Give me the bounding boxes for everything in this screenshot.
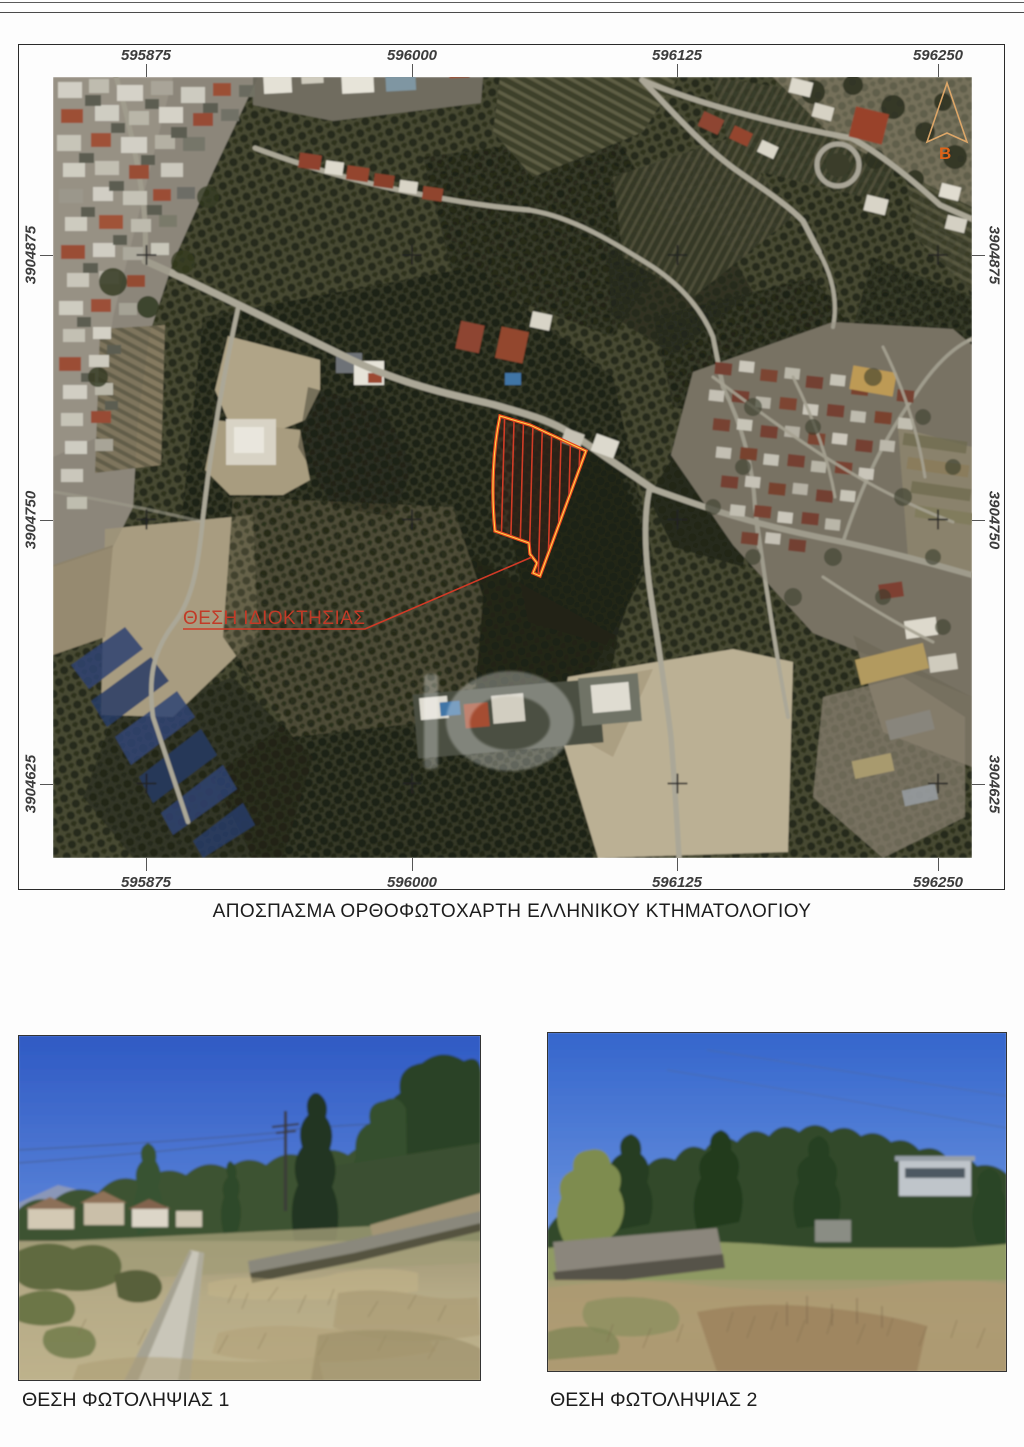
svg-text:ΘΕΣΗ ΙΔΙΟΚΤΗΣΙΑΣ: ΘΕΣΗ ΙΔΙΟΚΤΗΣΙΑΣ <box>183 608 365 629</box>
svg-text:B: B <box>939 144 951 163</box>
